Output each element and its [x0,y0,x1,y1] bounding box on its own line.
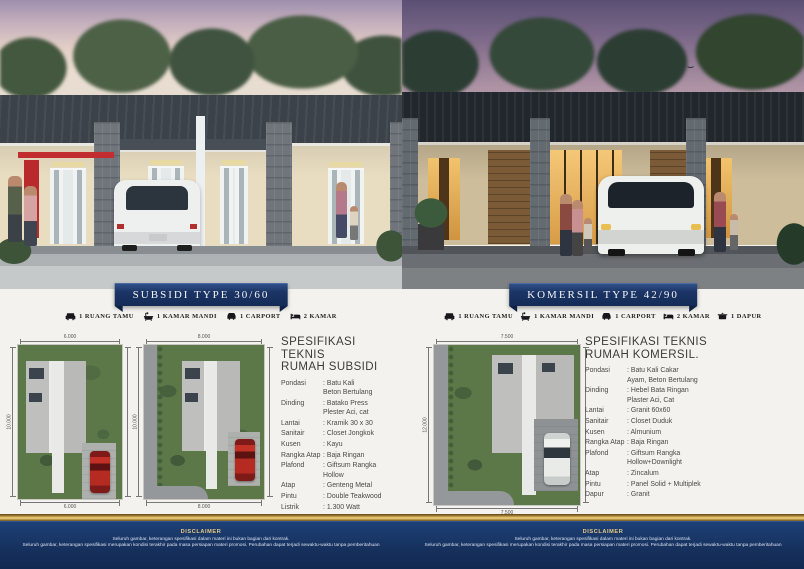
spec-label: Kusen [585,428,627,438]
person [336,182,347,238]
suv-grille [598,230,704,244]
stone-pillar [530,118,550,246]
spec-value: Granit 60x60 [627,406,670,416]
feature-item: 1 CARPORT [601,311,656,322]
red-car-topview [90,451,110,493]
wheel [608,249,625,256]
spec-label: Pondasi [585,366,627,385]
person [714,192,726,252]
spec-row: Lantai Kramik 30 x 30 [281,419,401,429]
spec-value: Batako Press Plester Aci, cat [323,399,369,418]
feature-item: 1 CARPORT [226,311,281,322]
spec-value: Double Teakwood [323,492,382,502]
spec-row: Rangka Atap Baja Ringan [585,438,735,448]
footer: DISCLAIMER Seluruh gambar, keterangan sp… [0,521,804,569]
front-door [50,168,86,244]
komersil-spec-title: SPESIFIKASI TEKNIS RUMAH KOMERSIL. [585,336,735,361]
person [24,186,37,246]
spec-label: Pondasi [281,379,323,398]
spec-row: Plafond Giftsum Rangka Hollow [281,461,401,480]
spec-row: Pintu Double Teakwood [281,492,401,502]
siteplan-lot [18,345,122,499]
road [434,345,448,505]
spec-row: Pintu Panel Solid + Multiplek [585,480,735,490]
spec-value: Zincalum [627,469,659,479]
spec-row: Dinding Hebel Bata Ringan Plaster Aci, C… [585,386,735,405]
feature-label: 1 RUANG TAMU [458,313,513,320]
spec-value: Closet Jongkok [323,429,374,439]
spec-value: Batu Kali Cakar Ayam, Beton Bertulang [627,366,698,385]
spec-row: Plafond Giftsum Rangka Hollow+Downlight [585,449,735,468]
spec-value: Kramik 30 x 30 [323,419,373,429]
taillight [117,224,124,229]
feature-item: 1 RUANG TAMU [444,311,513,322]
subsidi-specs: SPESIFIKASI TEKNIS RUMAH SUBSIDI Pondasi… [281,336,401,513]
spec-row: Pondasi Batu Kali Cakar Ayam, Beton Bert… [585,366,735,385]
spec-row: Kusen Kayu [281,440,401,450]
feature-label: 1 DAPUR [731,313,762,320]
subsidi-siteplan-2: 8.000 8.000 10.000 [134,334,274,510]
spec-label: Lantai [585,406,627,416]
spec-value: Batu Kali Beton Bertulang [323,379,372,398]
komersil-siteplan: 7.500 7.500 12.000 [424,334,590,516]
subsidi-features: 1 RUANG TAMU 1 KAMAR MANDI 1 CARPORT 2 K… [0,311,402,322]
dimension-label: 6.000 [64,504,77,510]
red-car-topview [235,439,255,481]
person [572,200,583,256]
wood-panel [488,150,530,244]
spec-label: Sanitair [585,417,627,427]
spec-row: Dinding Batako Press Plester Aci, cat [281,399,401,418]
subsidi-house-photo [0,0,402,289]
feature-label: 1 KAMAR MANDI [534,313,594,320]
bed-icon [290,311,301,322]
spec-value: Baja Ringan [323,451,364,461]
plant [412,196,450,230]
spec-value: 1.300 Watt [323,503,360,513]
komersil-features: 1 RUANG TAMU 1 KAMAR MANDI 1 CARPORT 2 K… [402,311,804,322]
feature-label: 2 KAMAR [677,313,710,320]
spec-row: Lantai Granit 60x60 [585,406,735,416]
sofa-icon [444,311,455,322]
spec-value: Giftsum Rangka Hollow [323,461,376,480]
feature-label: 1 RUANG TAMU [79,313,134,320]
spec-value: Closet Duduk [627,417,672,427]
dimension-label: 8.000 [198,334,211,340]
subsidi-banner: SUBSIDI TYPE 30/60 [115,283,288,306]
spec-row: Sanitair Closet Duduk [585,417,735,427]
feature-item: 2 KAMAR [290,311,337,322]
komersil-house-photo [402,0,804,289]
stone-pillar [266,122,292,246]
komersil-section: KOMERSIL TYPE 42/90 1 RUANG TAMU 1 KAMAR… [402,0,804,568]
spec-label: Pintu [281,492,323,502]
walkway [206,361,217,489]
car-icon [601,311,612,322]
spec-value: Baja Ringan [627,438,668,448]
subsidi-siteplan-1: 6.000 6.000 10.000 [8,334,132,510]
sofa-icon [65,311,76,322]
komersil-specs: SPESIFIKASI TEKNIS RUMAH KOMERSIL. Ponda… [585,336,735,501]
dimension-label: 10.000 [7,414,13,429]
spec-label: Kusen [281,440,323,450]
dimension-label: 10.000 [133,414,139,429]
headlight [691,224,701,230]
spec-label: Plafond [281,461,323,480]
komersil-banner-label: KOMERSIL TYPE 42/90 [527,289,679,301]
spec-row: Listrik 1.300 Watt [281,503,401,513]
wheel [177,245,192,251]
stove-icon [717,311,728,322]
bush [374,228,402,264]
car-icon [226,311,237,322]
brochure-page: SUBSIDI TYPE 30/60 1 RUANG TAMU 1 KAMAR … [0,0,804,568]
feature-item: 1 KAMAR MANDI [520,311,594,322]
red-fascia [18,152,114,158]
subsidi-section: SUBSIDI TYPE 30/60 1 RUANG TAMU 1 KAMAR … [0,0,402,568]
spec-label: Atap [585,469,627,479]
headlight [601,224,611,230]
spec-label: Rangka Atap [281,451,323,461]
spec-label: Dinding [281,399,323,418]
spec-value: Hebel Bata Ringan Plaster Aci, Cat [627,386,689,405]
spec-label: Dinding [585,386,627,405]
spec-row: Atap Zincalum [585,469,735,479]
disclaimer-right: DISCLAIMER Seluruh gambar, keterangan sp… [402,522,804,569]
feature-label: 1 CARPORT [615,313,656,320]
siteplan-lot [434,345,580,505]
road-corner [434,491,514,505]
feature-label: 1 CARPORT [240,313,281,320]
spec-row: Pondasi Batu Kali Beton Bertulang [281,379,401,398]
wheel [678,249,695,256]
child [730,214,738,250]
car-rear-window [126,186,188,210]
feature-item: 1 RUANG TAMU [65,311,134,322]
spec-label: Plafond [585,449,627,468]
spec-value: Panel Solid + Multiplek [627,480,701,490]
bathtub-icon [520,311,531,322]
spec-label: Dapur [585,490,627,500]
spec-label: Sanitair [281,429,323,439]
subsidi-spec-title: SPESIFIKASI TEKNIS RUMAH SUBSIDI [281,336,401,374]
komersil-banner: KOMERSIL TYPE 42/90 [509,283,697,306]
dimension-label: 6.000 [64,334,77,340]
dimension-label: 12.000 [423,417,429,432]
spec-row: Rangka Atap Baja Ringan [281,451,401,461]
person [560,194,572,256]
spec-value: Kayu [323,440,343,450]
siteplan-lot [144,345,264,499]
spec-value: Almunium [627,428,661,438]
bed-icon [663,311,674,322]
feature-label: 2 KAMAR [304,313,337,320]
bush [774,220,804,268]
road-corner [144,486,208,499]
person [8,176,22,242]
spec-row: Dapur Granit [585,490,735,500]
white-car-topview [544,433,570,485]
gold-divider-bar [0,514,804,521]
spec-row: Atap Genteng Metal [281,481,401,491]
feature-item: 1 KAMAR MANDI [143,311,217,322]
taillight [190,224,197,229]
window [220,166,248,244]
spec-label: Pintu [585,480,627,490]
disclaimer-left: DISCLAIMER Seluruh gambar, keterangan sp… [0,522,402,569]
spec-row: Kusen Almunium [585,428,735,438]
wheel [122,245,137,251]
spec-value: Granit [627,490,650,500]
bathtub-icon [143,311,154,322]
feature-item: 1 DAPUR [717,311,762,322]
child [584,218,592,254]
subsidi-banner-label: SUBSIDI TYPE 30/60 [133,289,270,301]
spec-label: Listrik [281,503,323,513]
feature-label: 1 KAMAR MANDI [157,313,217,320]
spec-label: Lantai [281,419,323,429]
hedge-row [157,345,163,486]
feature-item: 2 KAMAR [663,311,710,322]
suv-window [608,182,694,208]
child [350,206,358,240]
hedge-row [448,345,454,491]
spec-row: Sanitair Closet Jongkok [281,429,401,439]
roof [402,92,804,145]
license-plate [149,234,167,241]
spec-label: Rangka Atap [585,438,627,448]
spec-value: Genteng Metal [323,481,372,491]
walkway [52,361,64,493]
dimension-label: 7.500 [501,334,514,340]
road [144,345,157,499]
spec-label: Atap [281,481,323,491]
dimension-label: 8.000 [198,504,211,510]
spec-value: Giftsum Rangka Hollow+Downlight [627,449,682,468]
